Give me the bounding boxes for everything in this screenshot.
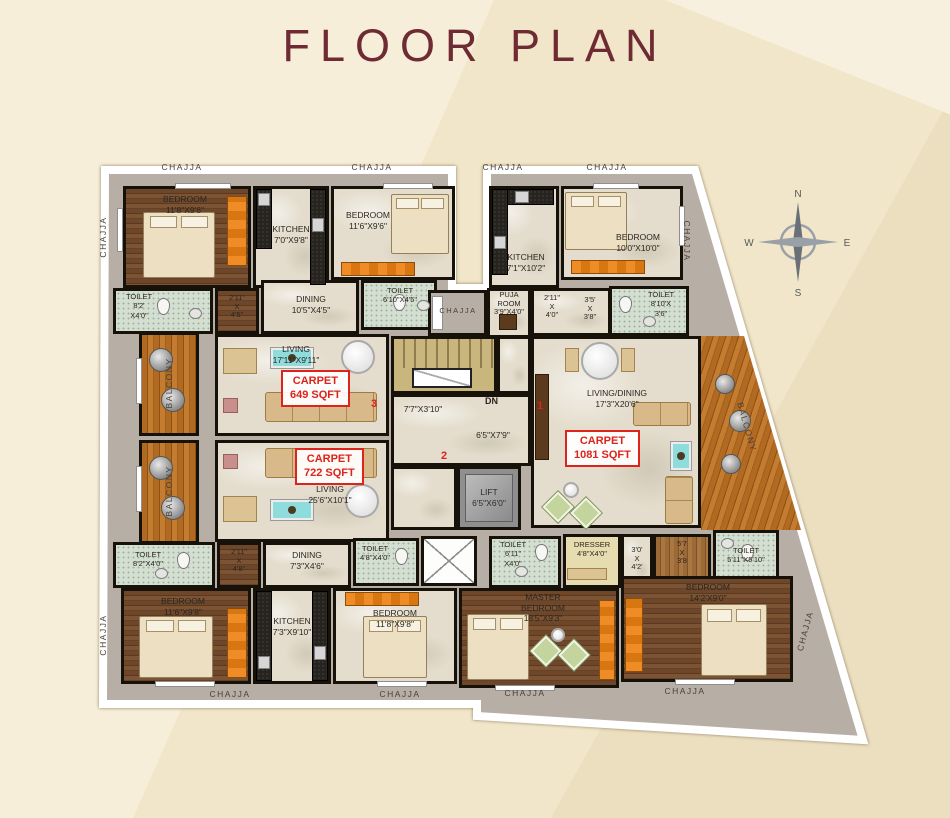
window [117, 208, 123, 252]
label-passage-tl: 2'11"X4'5" [217, 294, 257, 320]
label-toilet-right: TOILET5'11"X5'10" [715, 546, 777, 565]
label-bedroom-br: BEDROOM14'2'X9'0" [653, 582, 763, 603]
label-master-bedroom: MASTERBEDROOM18'5"X9'3" [503, 592, 583, 624]
label-living-u1: LIVING/DINING17'3"X20'6" [557, 388, 677, 409]
lift-label: LIFT 6'5"X6'0" [465, 474, 513, 522]
chajja-label: CHAJJA [562, 162, 652, 172]
balcony-label: BALCONY [164, 343, 174, 423]
basin-icon [155, 568, 168, 579]
sofa [665, 476, 693, 524]
chajja-label: CHAJJA [682, 211, 692, 271]
label-toilet-bl: TOILET8'2"X4'0" [119, 550, 177, 569]
label-lobby1: 7'7"X3'10" [393, 404, 453, 415]
sink-icon [515, 191, 529, 203]
wardrobe [599, 600, 615, 680]
chajja-label: CHAJJA [137, 162, 227, 172]
label-passage-tr1: 2'11"X4'0" [535, 294, 569, 320]
label-passage-br1: 3'0'X4'2' [623, 546, 651, 572]
label-passage-br2: 5'7X3'8 [657, 540, 707, 566]
carpet-area-u3: CARPET649 SQFT [281, 370, 350, 407]
carpet-area-u1: CARPET1081 SQFT [565, 430, 640, 467]
lift-dims: 6'5"X6'0" [472, 498, 506, 509]
stair-treads [394, 339, 494, 368]
armchair [223, 496, 257, 522]
label-kitchen-tr: KITCHEN7'1"X10'2" [493, 252, 559, 273]
side-table [563, 482, 579, 498]
chajja-label: CHAJJA [480, 688, 570, 698]
chajja-label: CHAJJA [327, 162, 417, 172]
label-bedroom-tr: BEDROOM10'0"X10'0" [595, 232, 681, 253]
dining-chair [565, 348, 579, 372]
dining-chair [621, 348, 635, 372]
window [155, 681, 215, 687]
floor-plan: LIFT 6'5"X6'0" [95, 148, 877, 770]
hall-stair-side [497, 336, 531, 394]
stove-icon [314, 646, 326, 660]
chajja-label: CHAJJA [355, 689, 445, 699]
wardrobe [341, 262, 415, 276]
chajja-label: CHAJJA [458, 162, 548, 172]
lift-name: LIFT [480, 487, 497, 498]
window [675, 679, 735, 685]
page-title: FLOOR PLAN [0, 20, 950, 72]
dresser-counter [567, 568, 607, 580]
hall-lift-lobby [391, 466, 457, 530]
window [175, 183, 231, 189]
window [136, 358, 142, 404]
label-living-u2: LIVING25'6"X10'1" [275, 484, 385, 505]
balcony-label: BALCONY [164, 451, 174, 531]
chajja-label: CHAJJA [185, 689, 275, 699]
bed [143, 212, 215, 278]
label-toilet-tr: TOILET8'10'X3'6" [637, 290, 685, 318]
label-bedroom-bl2: BEDROOM11'8"X9'8" [345, 608, 445, 629]
label-bedroom-tl2: BEDROOM11'6"X9'6" [333, 210, 403, 231]
label-bedroom-bl1: BEDROOM11'6"X9'8" [133, 596, 233, 617]
duct-shaft [421, 536, 477, 586]
unit-number-1: 1 [537, 400, 543, 412]
sink-icon [258, 656, 270, 669]
chajja-label: CHAJJA [435, 306, 481, 315]
unit-number-3: 3 [371, 398, 377, 410]
window [377, 681, 427, 687]
wardrobe [227, 608, 247, 678]
staircase [391, 336, 497, 394]
chajja-label: CHAJJA [640, 686, 730, 696]
wardrobe [571, 260, 645, 274]
label-dresser: DRESSER4'8"X4'0" [565, 540, 619, 559]
label-dining-bl: DINING7'3"X4'6" [267, 550, 347, 571]
cabinet [535, 374, 549, 460]
bed [467, 614, 529, 680]
bed [139, 616, 213, 678]
pouf [223, 398, 238, 413]
wardrobe [345, 592, 419, 606]
lift: LIFT 6'5"X6'0" [457, 466, 521, 530]
wardrobe [625, 598, 643, 672]
label-bedroom-tl1: BEDROOM11'8"X9'6" [135, 194, 235, 215]
label-living-u3: LIVING17'11"X9'11" [241, 344, 351, 365]
carpet-area-u2: CARPET722 SQFT [295, 448, 364, 485]
label-toilet-bm1: TOILET4'8"X4'0" [355, 544, 395, 563]
basin-icon [189, 308, 202, 319]
stove-icon [494, 236, 506, 249]
window [593, 183, 639, 189]
chajja-label: CHAJJA [98, 605, 108, 665]
round-chair [721, 454, 741, 474]
dining-table [581, 342, 619, 380]
label-toilet-bm2: TOILET6'11"X4'0" [493, 540, 533, 568]
label-lobby2: 6'5"X7'9" [463, 430, 523, 441]
label-puja: PUJAROOM3'9"X4'0" [489, 291, 529, 317]
stair-landing [412, 368, 472, 388]
label-kitchen-b: KITCHEN7'3"X9'10" [257, 616, 327, 637]
label-toilet-tl1: TOILET8'2'X4'0" [117, 292, 161, 320]
window [383, 183, 433, 189]
unit-number-2: 2 [441, 450, 447, 462]
sink-icon [258, 193, 270, 206]
aquarium [671, 442, 691, 470]
stairs-down-label: DN [485, 396, 498, 406]
label-toilet-tl2: TOILET6'10"X4'5" [367, 286, 433, 305]
bed [701, 604, 767, 676]
label-passage-bl: 2'11"X4'8" [219, 548, 259, 574]
label-dining-tl: DINING10'5"X4'5" [271, 294, 351, 315]
label-kitchen-tl: KITCHEN7'0"X9'8" [255, 224, 327, 245]
window [136, 466, 142, 512]
pouf [223, 454, 238, 469]
side-table [551, 628, 565, 642]
label-passage-tr2: 3'5'X3'8" [575, 296, 605, 322]
chajja-label: CHAJJA [98, 207, 108, 267]
